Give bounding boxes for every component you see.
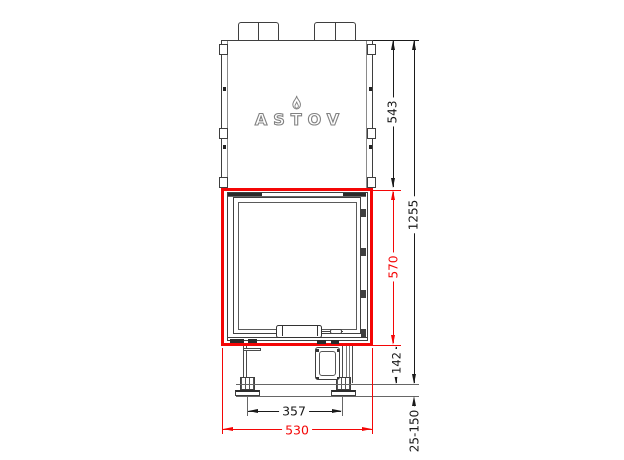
dim-25-150-label: 25-150 <box>408 407 421 456</box>
hinge-bracket <box>219 177 228 188</box>
arrow-right-icon <box>332 409 342 413</box>
screw-dot <box>337 377 340 380</box>
hinge-bracket <box>367 44 376 55</box>
flame-icon <box>291 95 303 111</box>
arrow-down-icon <box>412 374 416 384</box>
glass-clip <box>361 248 366 256</box>
air-intake-duct-inner <box>319 351 336 376</box>
handle-cap <box>317 326 318 336</box>
screw-dot <box>316 349 319 352</box>
glass-clip <box>361 290 366 298</box>
arrow-left-icon <box>223 427 233 431</box>
vent-slot <box>228 193 262 197</box>
arrow-left-icon <box>248 409 258 413</box>
glass-clip <box>361 209 366 217</box>
left-leg-bracket <box>244 348 261 351</box>
arrow-up-icon <box>391 190 395 200</box>
screw-dot <box>223 87 227 91</box>
dim-142-label: 142 <box>390 349 403 377</box>
screw-dot <box>369 87 373 91</box>
extension-line-red <box>373 190 401 191</box>
rail-block <box>248 339 257 343</box>
hinge-bracket <box>219 44 228 55</box>
extension-line <box>247 397 248 417</box>
dim-543-label: 543 <box>387 98 400 127</box>
arrow-up-icon <box>412 396 416 406</box>
rail-block <box>331 340 339 344</box>
latch-tab <box>330 329 342 334</box>
screw-dot <box>316 377 319 380</box>
extension-line <box>342 397 343 417</box>
screw-dot <box>337 349 340 352</box>
vent-slot <box>343 193 366 197</box>
arrow-down-icon <box>391 178 395 188</box>
dim-357-label: 357 <box>279 405 309 418</box>
dim-530-label: 530 <box>282 423 312 436</box>
technical-drawing: ASTOV 543 1255 <box>0 0 624 460</box>
extension-line-red <box>372 348 373 434</box>
brand-logo-text: ASTOV <box>249 110 345 129</box>
screw-dot <box>369 145 373 149</box>
handle-cap <box>282 326 283 336</box>
screw-dot <box>223 145 227 149</box>
dim-570-label: 570 <box>387 253 400 282</box>
left-leg <box>243 346 247 377</box>
extension-line-red <box>222 348 223 434</box>
door-handle <box>276 325 322 338</box>
glass-clip <box>361 329 366 337</box>
door-glass <box>238 202 357 330</box>
arrow-right-icon <box>362 427 372 431</box>
dim-1255-label: 1255 <box>408 197 421 234</box>
floor-line-min <box>236 384 419 385</box>
rail-block <box>230 339 244 343</box>
flue-duct-right-divider <box>335 23 336 40</box>
arrow-up-icon <box>412 40 416 50</box>
rail-block <box>317 340 326 344</box>
brand-logo: ASTOV <box>221 110 373 132</box>
hinge-bracket <box>367 177 376 188</box>
arrow-up-icon <box>391 40 395 50</box>
flue-duct-left-divider <box>258 23 259 40</box>
arrow-down-icon <box>391 335 395 345</box>
floor-line-max <box>236 396 419 397</box>
